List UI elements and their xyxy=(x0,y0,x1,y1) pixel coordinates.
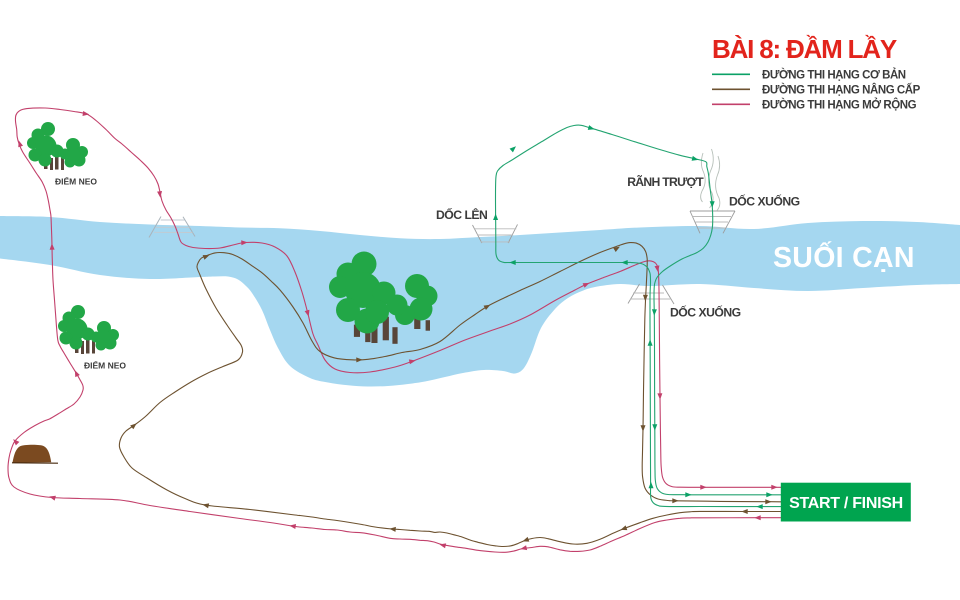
svg-text:ĐƯỜNG THI HẠNG MỞ RỘNG: ĐƯỜNG THI HẠNG MỞ RỘNG xyxy=(762,99,917,112)
svg-text:ĐƯỜNG THI HẠNG CƠ BẢN: ĐƯỜNG THI HẠNG CƠ BẢN xyxy=(762,69,906,82)
svg-text:DỐC LÊN: DỐC LÊN xyxy=(436,207,487,222)
svg-text:DỐC XUỐNG: DỐC XUỐNG xyxy=(729,194,800,209)
svg-text:ĐƯỜNG THI HẠNG NÂNG CẤP: ĐƯỜNG THI HẠNG NÂNG CẤP xyxy=(762,84,921,97)
svg-text:ĐIỂM NEO: ĐIỂM NEO xyxy=(55,176,97,187)
svg-text:RÃNH TRƯỢT: RÃNH TRƯỢT xyxy=(627,174,704,189)
svg-text:SUỐI CẠN: SUỐI CẠN xyxy=(773,241,915,274)
svg-text:START / FINISH: START / FINISH xyxy=(789,495,903,512)
svg-text:ĐIỂM NEO: ĐIỂM NEO xyxy=(84,360,126,371)
svg-text:BÀI 8: ĐẦM LẦY: BÀI 8: ĐẦM LẦY xyxy=(712,34,897,64)
svg-text:DỐC XUỐNG: DỐC XUỐNG xyxy=(670,305,741,320)
